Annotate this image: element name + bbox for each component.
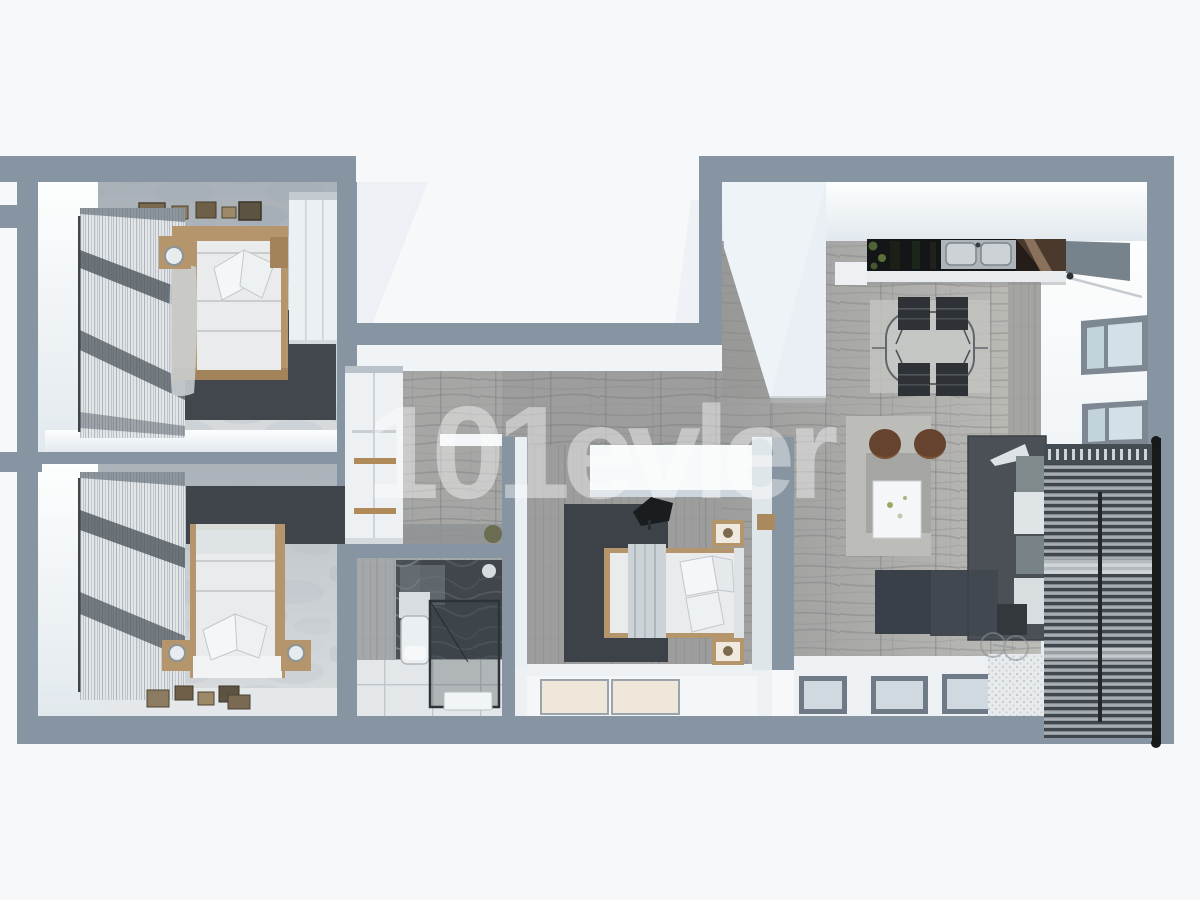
- svg-text:101evler: 101evler: [366, 379, 837, 526]
